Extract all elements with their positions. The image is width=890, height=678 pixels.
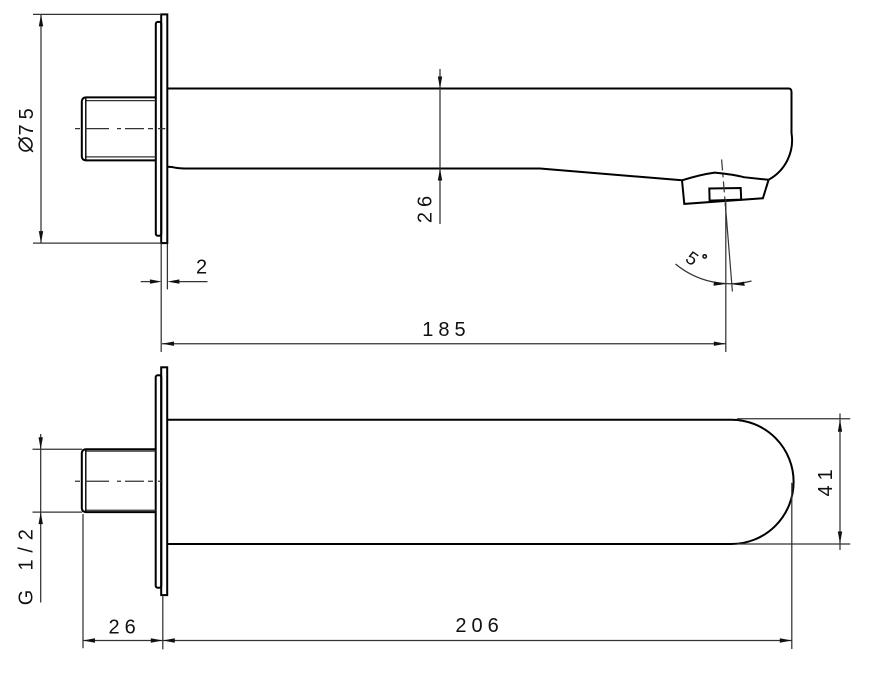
svg-text:206: 206 <box>455 615 503 637</box>
svg-text:75: 75 <box>16 103 38 135</box>
svg-text:185: 185 <box>422 319 470 341</box>
svg-text:41: 41 <box>815 464 837 496</box>
svg-text:26: 26 <box>108 616 140 638</box>
svg-text:26: 26 <box>415 191 437 223</box>
svg-text:G 1/2: G 1/2 <box>16 522 38 605</box>
svg-text:2: 2 <box>196 257 212 279</box>
